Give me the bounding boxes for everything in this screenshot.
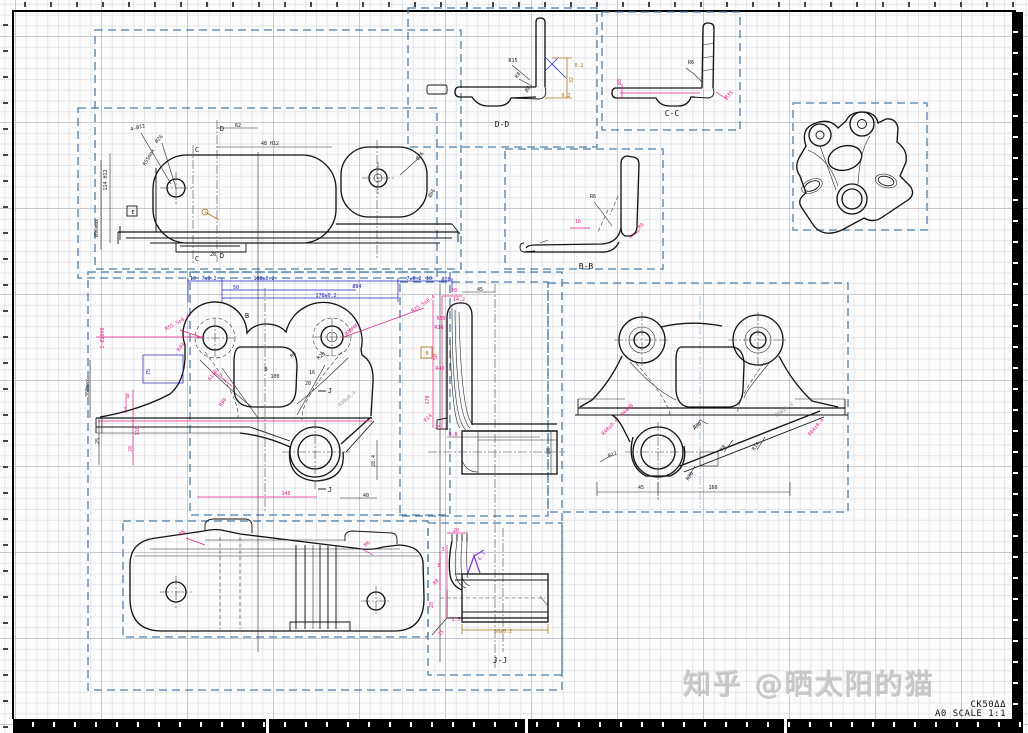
view-front[interactable] — [90, 278, 452, 512]
cut-marker-d: D — [220, 125, 224, 133]
dim-label: R14 — [423, 413, 434, 424]
dim-label: R6 — [363, 540, 372, 549]
dim-label: Ø8 — [523, 85, 532, 94]
section-label-cc: C-C — [665, 109, 680, 118]
dim-label: 2-Ø20H8 — [99, 327, 106, 348]
dim-label: R90 — [218, 397, 228, 408]
dim-label: 14.2 — [453, 297, 465, 303]
block-boundary[interactable] — [548, 283, 848, 512]
dim-label: Ø20H8 — [343, 322, 359, 337]
section-label-bb: B-B — [579, 262, 594, 271]
view-bottom[interactable] — [130, 519, 424, 631]
section-label-dd: D-D — [495, 120, 510, 129]
dim-label: 15 — [437, 629, 446, 638]
dim-label: 10 — [426, 276, 432, 282]
sheet-border-right-bar — [1012, 12, 1023, 733]
dim-label: B — [264, 367, 267, 373]
dim-label: 45 — [477, 287, 483, 293]
dim-label: 160 — [708, 485, 717, 491]
dim-label: R8 — [719, 444, 727, 452]
dim-label: 28 — [546, 448, 552, 454]
dim-label: 9 — [126, 394, 129, 400]
dim-label: 7±0.2 — [406, 276, 421, 282]
dim-label: R16 — [434, 325, 443, 331]
view-bb-section[interactable] — [520, 156, 640, 252]
dim-label: 48 H12 — [261, 141, 279, 147]
dim-label: 4-Ø12 — [129, 122, 145, 133]
dim-label: 170 — [425, 395, 431, 404]
dim-label: 32 — [569, 77, 575, 83]
dim-label: R40 — [435, 366, 444, 372]
dim-label: Ø84 — [352, 283, 361, 290]
watermark: 知乎 @晒太阳的猫 — [683, 663, 935, 703]
dim-label: 3 — [123, 407, 126, 413]
dim-label: 20 — [305, 381, 311, 387]
dim-label: 28 — [210, 252, 216, 258]
dim-label: 9.2 — [561, 93, 570, 99]
dim-label: 8 — [437, 563, 440, 569]
dim-label: R15 — [508, 58, 517, 64]
dim-label: R30 — [685, 471, 695, 482]
dim-label: R20 — [316, 351, 327, 361]
dim-label: R25.5±0.4 — [411, 294, 437, 314]
dim-label: R6 — [178, 529, 187, 538]
block-boundary[interactable] — [88, 272, 562, 690]
cut-marker-j: J — [328, 387, 332, 395]
dim-label: 75 — [146, 369, 152, 375]
cut-marker-j: J — [328, 486, 332, 494]
dim-label: 110 — [135, 426, 141, 435]
dim-label: R30 — [692, 421, 703, 431]
view-rear[interactable] — [575, 312, 848, 500]
dim-label: R8 — [432, 578, 441, 587]
dim-label: R12 — [607, 451, 618, 460]
dim-label: R30±0.4 — [337, 390, 357, 408]
dim-label: 28 — [429, 602, 435, 608]
dim-label: 114 H12 — [103, 169, 109, 190]
cut-marker-b: B — [245, 312, 249, 320]
cut-marker-c: C — [195, 255, 199, 263]
dim-label: R35 — [724, 90, 735, 101]
dim-label: Ø96max — [93, 219, 100, 237]
block-boundary[interactable] — [400, 282, 548, 516]
dim-label: 20 — [453, 528, 459, 534]
dim-label: 100 — [270, 374, 279, 380]
view-jj-section[interactable] — [432, 528, 548, 652]
dim-label: 28 — [128, 446, 134, 452]
dim-label: 188±0.2 — [253, 276, 274, 282]
dim-label: 0.2 — [574, 63, 583, 69]
dim-label: 20 — [451, 288, 457, 294]
dim-label: 360max — [85, 379, 91, 397]
dim-label: 10 — [190, 276, 196, 282]
dim-label: 16 — [575, 219, 581, 225]
block-boundaries — [78, 8, 927, 690]
dim-label: 50 — [433, 354, 439, 360]
datum-b: B — [425, 351, 428, 357]
title-block: CK50ΔΔ A0 SCALE 1:1 — [935, 701, 1006, 719]
view-isometric[interactable] — [797, 112, 913, 233]
dim-label: Ø8 — [616, 79, 623, 85]
dim-label: R55max — [142, 148, 156, 167]
dim-label: Ø66 — [426, 188, 437, 199]
view-cc-section[interactable] — [612, 23, 728, 106]
dim-label: 3 — [441, 547, 444, 553]
dim-label: 16 — [309, 370, 315, 376]
drawing-canvas[interactable]: D-DC-CB-BJ-JDDCCJJBBE4-Ø12Ø26R55max48 H1… — [0, 0, 1028, 733]
dim-label: Ø20 — [441, 276, 450, 283]
dim-label: 1.5 — [451, 617, 460, 623]
sheet-border-bottom-bar — [13, 719, 1023, 733]
dim-label: R6 — [590, 194, 596, 200]
dim-label: 7±0.2 — [201, 276, 216, 282]
cut-marker-d: D — [220, 252, 224, 260]
dim-label: R6 — [688, 60, 694, 66]
dim-label: 45 — [638, 485, 644, 491]
dim-label: 25 — [95, 438, 101, 444]
dim-label: 40 — [363, 493, 369, 499]
dim-label: 208±0.4 — [774, 402, 795, 419]
projection-lines — [258, 140, 700, 668]
dim-label: R55.5±0.4 — [164, 314, 190, 333]
dim-label: Ø26 — [153, 133, 164, 144]
datum-e: E — [131, 210, 134, 216]
dim-label: R9 — [637, 222, 646, 231]
title-block-sheet-scale: A0 SCALE 1:1 — [935, 710, 1006, 719]
dim-label: 28.4 — [371, 455, 377, 467]
dim-label: 62 — [235, 123, 241, 129]
cut-marker-c: C — [195, 146, 199, 154]
dim-label: 178±0.2 — [315, 293, 336, 299]
dim-label: 140 — [281, 491, 290, 497]
dim-label: 9.8 — [448, 432, 457, 438]
dim-label: 50 — [233, 285, 239, 291]
view-dd-section[interactable] — [427, 18, 572, 106]
block-boundary[interactable] — [78, 108, 437, 278]
dim-label: 50±0.2 — [494, 629, 512, 635]
dim-label: 25 — [435, 425, 441, 431]
dim-label: R140 — [207, 369, 219, 382]
dim-label: R48±0.4 — [601, 418, 620, 437]
section-label-jj: J-J — [493, 656, 507, 665]
dim-label: R50 — [436, 316, 445, 322]
